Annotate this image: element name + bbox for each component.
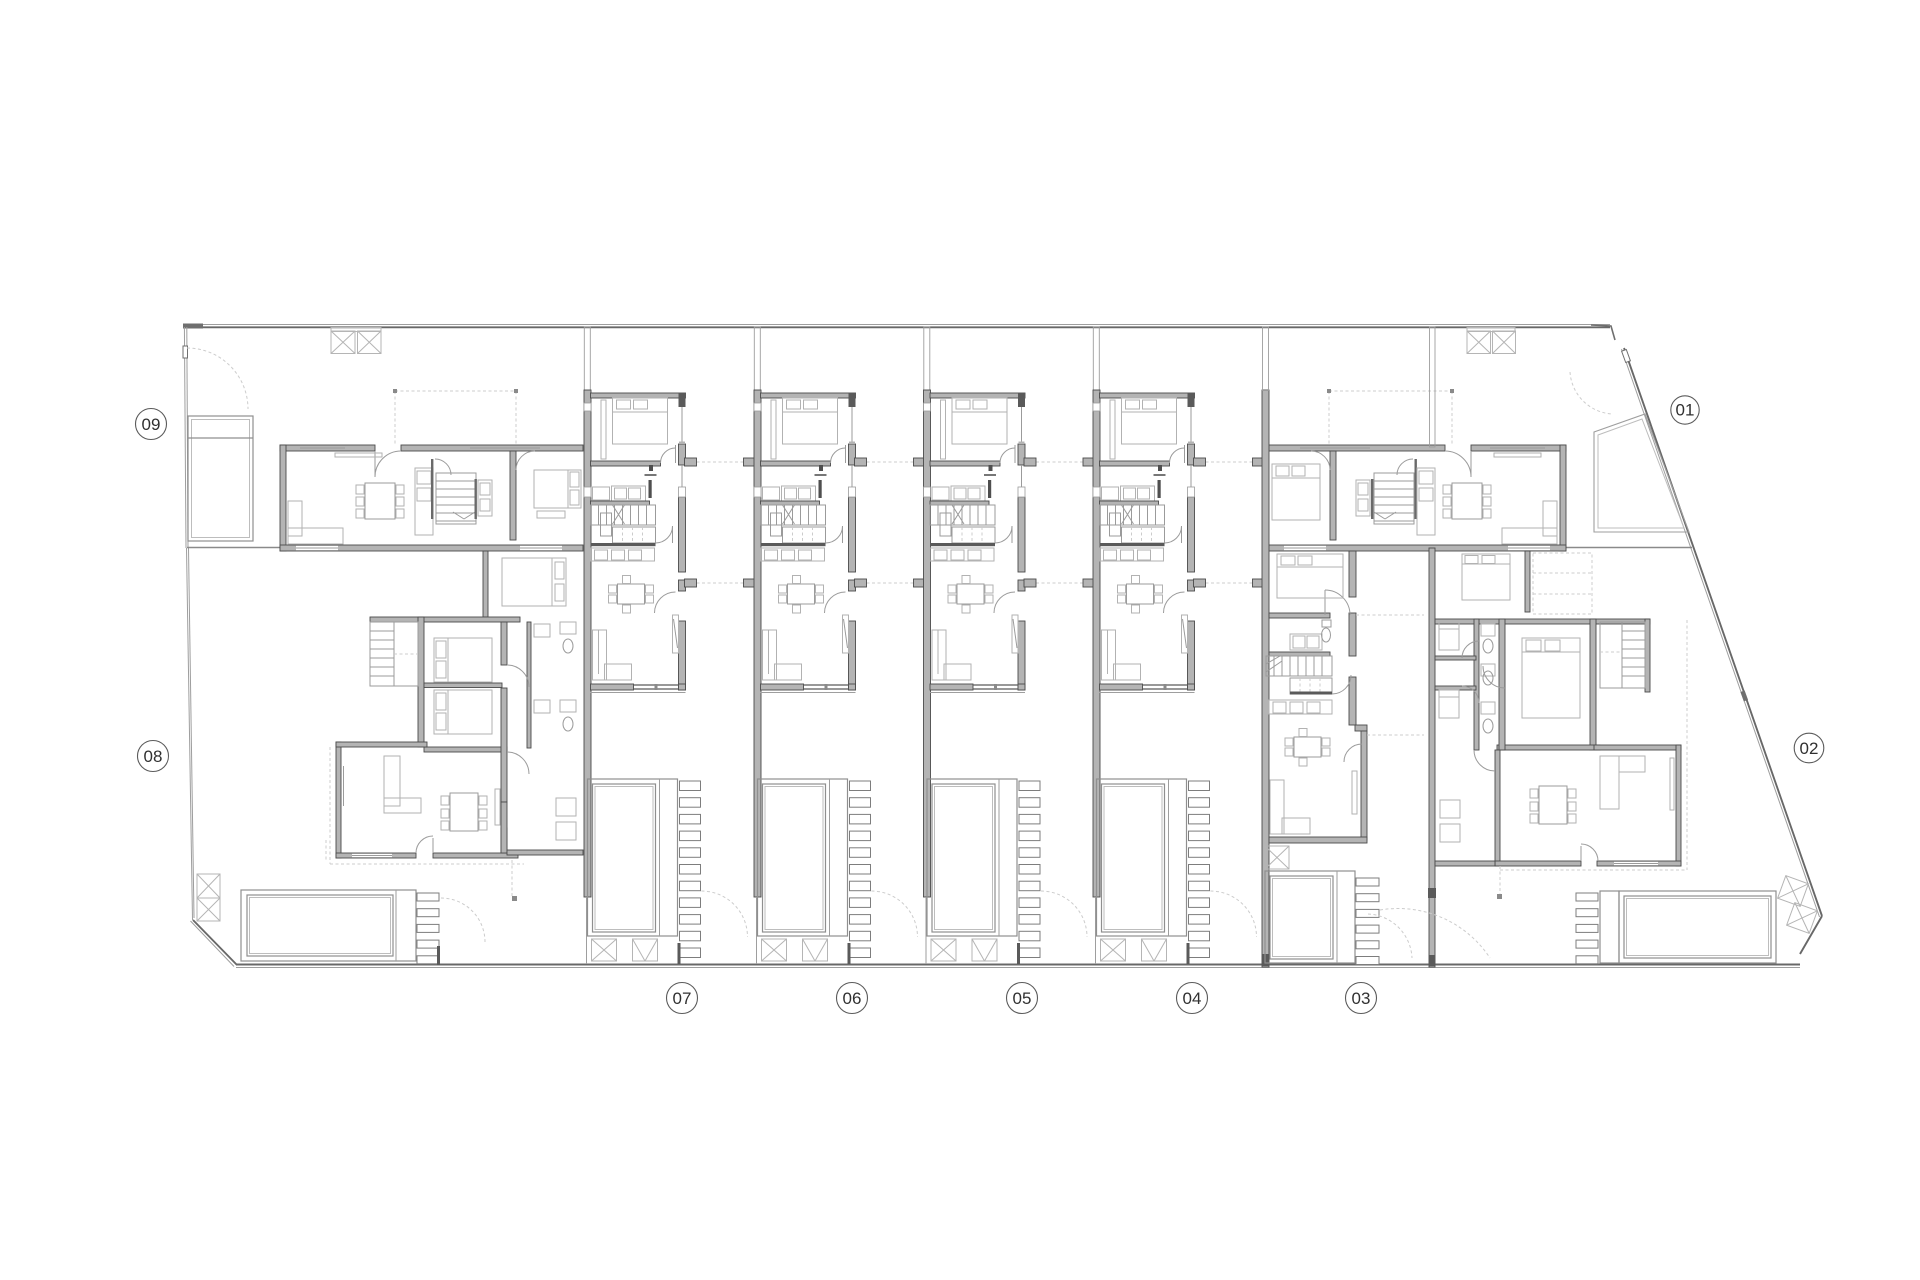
svg-text:09: 09 — [142, 415, 161, 434]
svg-text:03: 03 — [1352, 989, 1371, 1008]
svg-text:06: 06 — [843, 989, 862, 1008]
svg-text:01: 01 — [1676, 401, 1695, 420]
svg-text:04: 04 — [1183, 989, 1202, 1008]
svg-text:05: 05 — [1013, 989, 1032, 1008]
svg-text:02: 02 — [1800, 739, 1819, 758]
svg-text:08: 08 — [144, 747, 163, 766]
svg-text:07: 07 — [673, 989, 692, 1008]
